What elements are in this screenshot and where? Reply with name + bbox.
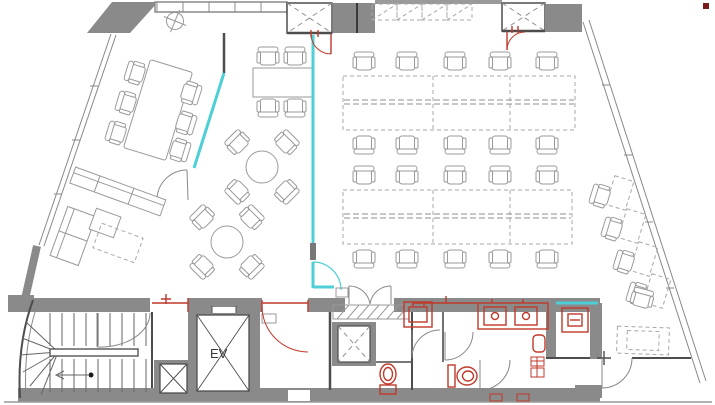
chair [396, 166, 418, 184]
floor-plan-page: EV [0, 0, 715, 405]
elevator-door [212, 307, 236, 313]
chair [489, 136, 511, 154]
duct-shaft-top-center [287, 3, 332, 33]
chair [489, 166, 511, 184]
chair [536, 136, 558, 154]
top-band-office [375, 0, 502, 4]
chair [444, 250, 466, 268]
top-window-band [155, 2, 287, 12]
chair [396, 250, 418, 268]
pipe-shaft [332, 322, 376, 366]
chair [284, 47, 306, 65]
red-marker-dot [703, 3, 709, 9]
chair [489, 52, 511, 70]
door-jamb [310, 243, 316, 260]
chair [536, 166, 558, 184]
wall-stub [575, 385, 602, 398]
elevator-label: EV [210, 346, 228, 361]
chair [536, 250, 558, 268]
chair [489, 250, 511, 268]
chair [444, 136, 466, 154]
wall-block-b [545, 4, 582, 32]
chair [396, 136, 418, 154]
chair [257, 99, 279, 117]
chair [536, 52, 558, 70]
chair [353, 166, 375, 184]
chair [257, 47, 279, 65]
stair-rail [50, 349, 138, 356]
chair [353, 136, 375, 154]
chair [353, 52, 375, 70]
chair [444, 52, 466, 70]
chair [353, 250, 375, 268]
chair [284, 99, 306, 117]
chair [444, 166, 466, 184]
wall-block-a [333, 3, 375, 33]
floor-plan-canvas: EV [0, 0, 715, 405]
square-table [253, 68, 312, 97]
pillar [590, 303, 602, 359]
duct-shaft-top-right [502, 3, 545, 31]
mid-wall [24, 298, 600, 312]
chair [396, 52, 418, 70]
